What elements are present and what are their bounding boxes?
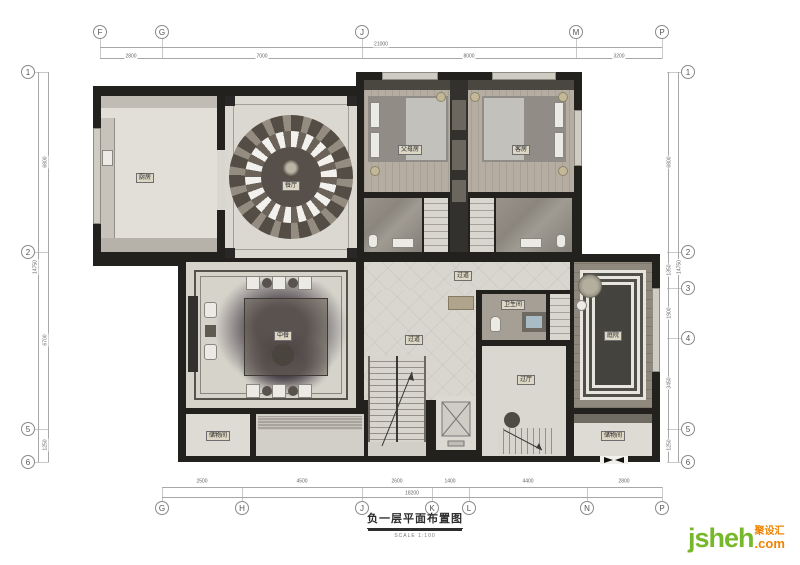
grid-marker-top-m: M [569,25,583,39]
dim-bottom-2: 4500 [295,480,308,485]
pouf [558,166,568,176]
table-center [272,344,294,366]
label-guest-room: 客房 [512,145,530,155]
kitchen-counter [101,118,115,244]
toilet [490,316,501,332]
watermark-logo: jsheh 聚设汇 .com [688,527,785,550]
cabinet [574,414,652,423]
window [492,72,556,80]
grid-line [576,39,577,59]
grid-line [362,39,363,59]
column [225,96,235,106]
console-table [448,296,474,310]
kitchen-bottom-cabinet [101,238,217,252]
dim-left-1: 6800 [44,155,49,168]
chair [246,384,260,398]
dim-right-2: 1350 [668,263,673,276]
grid-line [432,487,433,501]
label-kitchen: 厨房 [136,173,154,183]
window [574,110,582,166]
grid-line [100,39,101,59]
window [382,72,438,80]
bath-shelf [424,198,448,252]
grid-marker-bottom-p: P [655,501,669,515]
grid-marker-left-2: 2 [21,245,35,259]
wardrobe-slot [452,140,466,170]
stool [262,386,272,396]
pillow [370,102,380,128]
dim-left-2: 6700 [44,333,49,346]
dim-top-4: 3200 [612,55,625,60]
label-parents-room: 父母房 [398,145,422,155]
room-kitchen [101,96,217,252]
pouf [370,166,380,176]
stool [262,278,272,288]
grid-marker-left-5: 5 [21,422,35,436]
watermark-name: jsheh [688,527,754,550]
door-symbol-left [604,457,613,463]
plant [578,274,602,298]
armchair [204,344,217,360]
grid-line [587,487,588,501]
label-bathroom: 卫生间 [501,300,525,310]
column [347,96,357,106]
dim-bottom-3: 2600 [390,480,403,485]
dim-right-1: 6800 [668,155,673,168]
dim-bottom-4: 1400 [443,480,456,485]
label-storage-left: 储物间 [206,431,230,441]
grid-line [35,462,49,463]
dim-right-total: 14750 [678,259,683,275]
door-mat [258,416,362,430]
grid-marker-bottom-g: G [155,501,169,515]
label-hall: 过厅 [517,375,535,385]
stool [288,278,298,288]
side-cabinet [188,296,198,372]
kitchen-top-cabinet [101,96,217,108]
grid-line [162,39,163,59]
chair [246,276,260,290]
chair [272,384,286,398]
kitchen-sink [102,150,113,166]
dim-bottom-total: 18200 [404,492,420,497]
grid-marker-top-p: P [655,25,669,39]
stool-round [576,300,587,311]
grid-marker-right-4: 4 [681,331,695,345]
label-chinese-dining: 中餐 [274,331,292,341]
grid-marker-left-1: 1 [21,65,35,79]
armchair [204,302,217,318]
bath-shelf [470,198,494,252]
grid-line [242,487,243,501]
pillow [370,132,380,158]
wardrobe [364,80,456,90]
dim-top-1: 2800 [124,55,137,60]
dim-bottom-5: 4400 [521,480,534,485]
dim-right-5: 1250 [668,438,673,451]
grid-line [667,462,681,463]
dim-left-3: 1250 [44,438,49,451]
floor-plan-canvas: F G J M P G H J K L N P 1 2 5 6 1 2 3 4 … [0,0,800,565]
sink [520,238,542,248]
chair [298,384,312,398]
dim-right-4: 3450 [668,376,673,389]
dim-bottom-1: 2500 [195,480,208,485]
grid-marker-bottom-n: N [580,501,594,515]
pouf [470,92,480,102]
drawing-scale: SCALE 1:100 [367,533,463,539]
grid-marker-top-g: G [155,25,169,39]
label-courtyard: 庭院 [604,331,622,341]
window [93,128,101,224]
pillow [554,132,564,158]
stool [288,386,298,396]
dining-table-top [261,147,321,207]
pouf [558,92,568,102]
closet-column [550,294,570,340]
dim-line-bottom-total [162,497,662,498]
label-corridor-main: 过道 [405,335,423,345]
grid-marker-bottom-l: L [462,501,476,515]
kitchen-door-opening [217,150,225,210]
column [225,248,235,258]
grid-marker-bottom-h: H [235,501,249,515]
pouf [436,92,446,102]
chair [272,276,286,290]
grid-marker-top-j: J [355,25,369,39]
dim-bottom-6: 2800 [617,480,630,485]
dim-top-total: 21000 [373,43,389,48]
dim-top-2: 7000 [255,55,268,60]
grid-line [362,487,363,501]
grid-line [162,487,163,501]
toilet [556,234,566,248]
label-corridor-upper: 过道 [454,271,472,281]
side-table [205,325,216,337]
grid-marker-right-3: 3 [681,281,695,295]
elevator-symbol [436,396,476,450]
grid-marker-right-1: 1 [681,65,695,79]
chair [298,276,312,290]
dim-line-top-segments [100,58,662,59]
grid-marker-top-f: F [93,25,107,39]
dim-line-left-segments [48,72,49,462]
drawing-title: 负一层平面布置图 [367,510,463,529]
grid-line [662,39,663,59]
small-stair-arrow [498,424,552,456]
dining-centerpiece [283,160,299,176]
column [347,248,357,258]
grid-marker-right-6: 6 [681,455,695,469]
sink [392,238,414,248]
wardrobe [464,80,574,90]
dim-top-3: 8000 [462,55,475,60]
wardrobe-slot [452,100,466,130]
grid-marker-right-2: 2 [681,245,695,259]
vanity-sink [526,316,542,328]
grid-marker-left-6: 6 [21,455,35,469]
door-symbol-right [615,457,624,463]
dim-left-total: 14750 [34,259,39,275]
label-storage-right: 储物间 [601,431,625,441]
wardrobe-slot [452,180,466,202]
dim-right-3: 1900 [668,306,673,319]
drawing-title-block: 负一层平面布置图 SCALE 1:100 [367,510,463,539]
grid-marker-right-5: 5 [681,422,695,436]
dim-line-bottom-segments [162,487,662,488]
stair-arrow [368,356,426,456]
grid-line [469,487,470,501]
watermark-tld: .com [755,537,785,550]
grid-line [662,487,663,501]
watermark-right: 聚设汇 .com [755,527,785,550]
label-dining: 餐厅 [282,181,300,191]
window [652,288,660,372]
toilet [368,234,378,248]
pillow [554,102,564,128]
